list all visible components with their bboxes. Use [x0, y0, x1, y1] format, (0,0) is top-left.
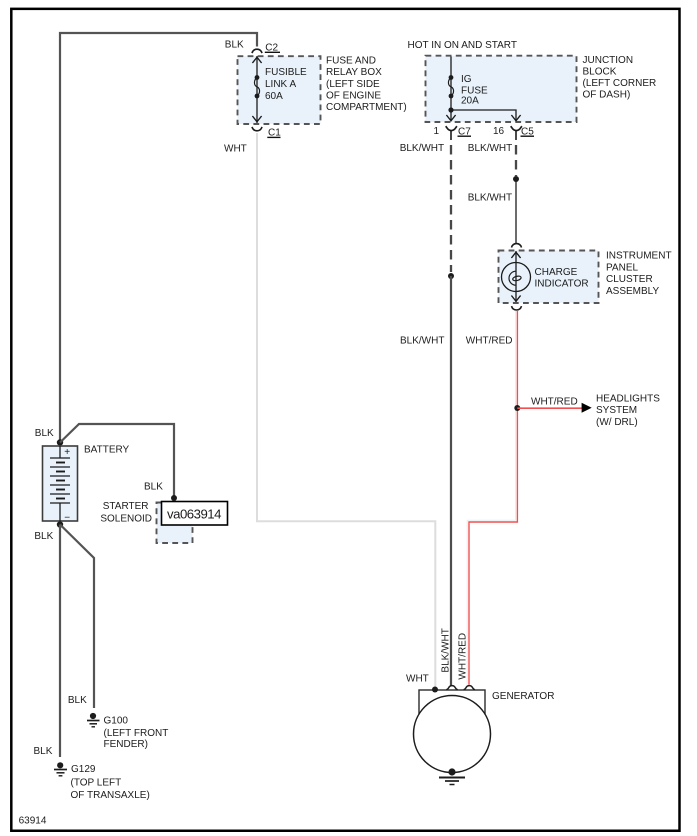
- svg-text:WHT/RED: WHT/RED: [466, 336, 513, 347]
- svg-text:BLK/WHT: BLK/WHT: [468, 193, 512, 204]
- svg-text:BLK: BLK: [68, 695, 87, 706]
- svg-text:GENERATOR: GENERATOR: [492, 691, 554, 702]
- svg-text:JUNCTION: JUNCTION: [583, 55, 634, 66]
- svg-text:16: 16: [493, 126, 505, 137]
- svg-text:HEADLIGHTS: HEADLIGHTS: [596, 393, 660, 404]
- svg-text:RELAY BOX: RELAY BOX: [326, 67, 382, 78]
- svg-text:ASSEMBLY: ASSEMBLY: [606, 286, 659, 297]
- svg-text:FUSIBLE: FUSIBLE: [265, 67, 307, 78]
- svg-text:+: +: [64, 447, 70, 458]
- svg-text:STARTER: STARTER: [103, 501, 149, 512]
- svg-text:1: 1: [434, 126, 440, 137]
- svg-text:BLK/WHT: BLK/WHT: [400, 336, 444, 347]
- svg-text:BATTERY: BATTERY: [84, 444, 130, 455]
- svg-text:LINK A: LINK A: [265, 79, 296, 90]
- svg-text:WHT/RED: WHT/RED: [531, 396, 578, 407]
- svg-text:SYSTEM: SYSTEM: [596, 405, 637, 416]
- svg-text:BLK: BLK: [144, 482, 163, 493]
- svg-text:G129: G129: [71, 764, 96, 775]
- svg-text:va063914: va063914: [167, 507, 221, 522]
- svg-text:G100: G100: [104, 715, 129, 726]
- svg-text:CHARGE: CHARGE: [535, 267, 578, 278]
- svg-text:COMPARTMENT): COMPARTMENT): [326, 102, 407, 113]
- svg-text:HOT IN ON AND START: HOT IN ON AND START: [408, 40, 517, 51]
- svg-text:BLK: BLK: [225, 40, 244, 51]
- svg-text:BLK/WHT: BLK/WHT: [468, 143, 512, 154]
- svg-text:FUSE AND: FUSE AND: [326, 55, 376, 66]
- svg-text:BLK: BLK: [35, 428, 54, 439]
- svg-text:BLK/WHT: BLK/WHT: [441, 628, 452, 672]
- svg-text:(LEFT SIDE: (LEFT SIDE: [326, 79, 380, 90]
- svg-text:20A: 20A: [461, 95, 479, 106]
- svg-text:63914: 63914: [19, 816, 47, 827]
- svg-text:(LEFT CORNER: (LEFT CORNER: [583, 78, 657, 89]
- svg-text:OF ENGINE: OF ENGINE: [326, 91, 381, 102]
- svg-text:(LEFT FRONT: (LEFT FRONT: [104, 728, 169, 739]
- svg-text:INSTRUMENT: INSTRUMENT: [606, 251, 672, 262]
- svg-text:IG: IG: [461, 74, 472, 85]
- svg-text:(W/ DRL): (W/ DRL): [596, 417, 638, 428]
- svg-text:60A: 60A: [265, 91, 283, 102]
- svg-text:OF TRANSAXLE): OF TRANSAXLE): [71, 790, 150, 801]
- svg-text:BLK: BLK: [34, 531, 53, 542]
- svg-text:BLK/WHT: BLK/WHT: [400, 143, 444, 154]
- svg-text:WHT: WHT: [224, 143, 247, 154]
- svg-text:INDICATOR: INDICATOR: [535, 279, 589, 290]
- svg-text:PANEL: PANEL: [606, 263, 638, 274]
- svg-text:(TOP LEFT: (TOP LEFT: [71, 777, 122, 788]
- svg-text:OF DASH): OF DASH): [583, 90, 631, 101]
- svg-text:CLUSTER: CLUSTER: [606, 274, 653, 285]
- svg-text:BLK: BLK: [34, 746, 53, 757]
- svg-text:SOLENOID: SOLENOID: [100, 514, 152, 525]
- svg-text:WHT/RED: WHT/RED: [458, 633, 469, 680]
- svg-text:−: −: [64, 513, 70, 524]
- svg-text:FENDER): FENDER): [104, 739, 148, 750]
- svg-text:WHT: WHT: [406, 673, 429, 684]
- svg-text:BLOCK: BLOCK: [583, 67, 617, 78]
